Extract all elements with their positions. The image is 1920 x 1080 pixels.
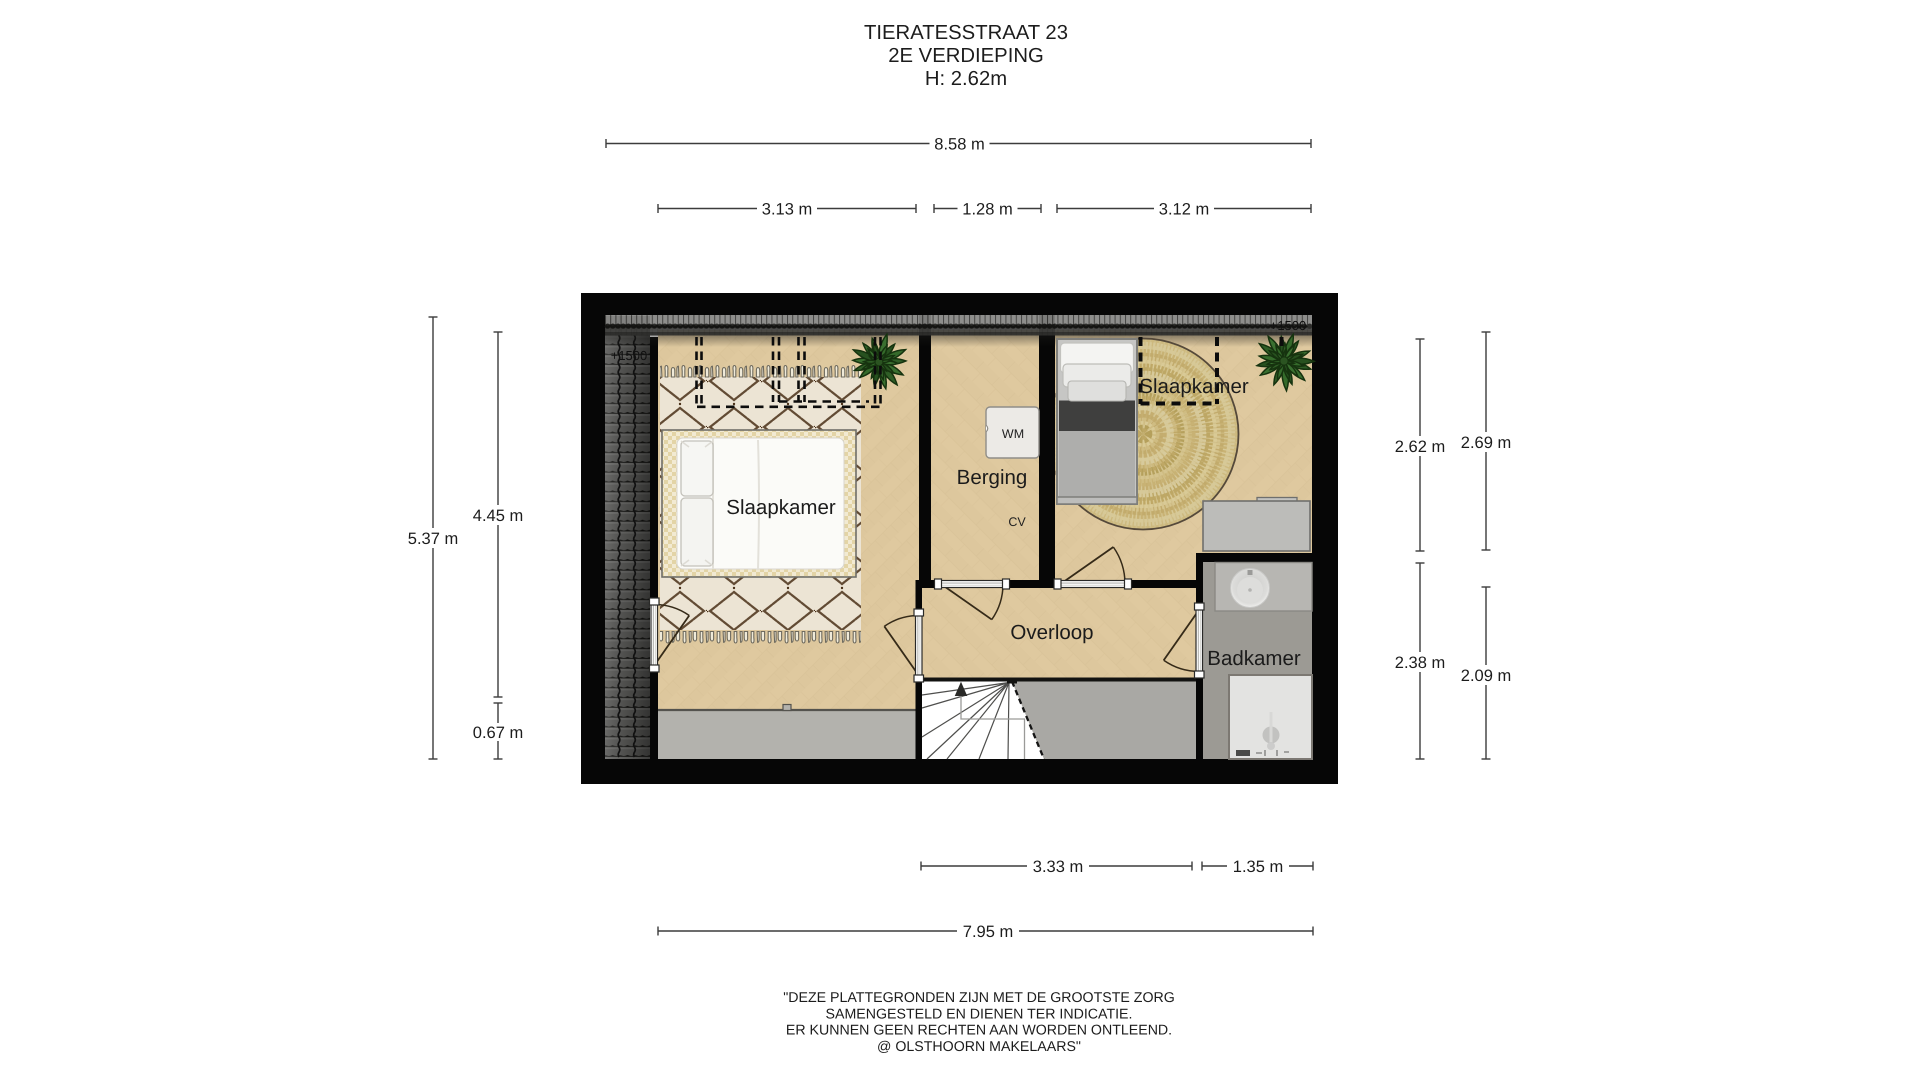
svg-text:Overloop: Overloop <box>1010 621 1093 644</box>
svg-text:2.69 m: 2.69 m <box>1461 434 1511 452</box>
svg-text:4.45 m: 4.45 m <box>473 507 523 525</box>
svg-text:@ OLSTHOORN MAKELAARS": @ OLSTHOORN MAKELAARS" <box>877 1039 1081 1055</box>
svg-text:7.95 m: 7.95 m <box>963 923 1013 941</box>
svg-text:Slaapkamer: Slaapkamer <box>1139 375 1249 398</box>
svg-text:2E VERDIEPING: 2E VERDIEPING <box>888 45 1044 67</box>
svg-text:CV: CV <box>1008 515 1026 529</box>
svg-text:1.35 m: 1.35 m <box>1233 858 1283 876</box>
svg-text:3.12 m: 3.12 m <box>1159 200 1209 218</box>
svg-text:2.38 m: 2.38 m <box>1395 654 1445 672</box>
svg-text:Badkamer: Badkamer <box>1207 647 1301 670</box>
svg-text:+1500: +1500 <box>1270 318 1307 333</box>
svg-text:3.33 m: 3.33 m <box>1033 858 1083 876</box>
svg-text:2.62 m: 2.62 m <box>1395 438 1445 456</box>
svg-text:0.67 m: 0.67 m <box>473 724 523 742</box>
svg-text:SAMENGESTELD EN DIENEN TER IND: SAMENGESTELD EN DIENEN TER INDICATIE. <box>826 1006 1133 1022</box>
svg-text:Berging: Berging <box>957 466 1028 489</box>
svg-text:TIERATESSTRAAT 23: TIERATESSTRAAT 23 <box>864 22 1068 44</box>
svg-text:H: 2.62m: H: 2.62m <box>925 68 1007 90</box>
svg-text:3.13 m: 3.13 m <box>762 200 812 218</box>
svg-text:ER KUNNEN GEEN RECHTEN AAN WOR: ER KUNNEN GEEN RECHTEN AAN WORDEN ONTLEE… <box>786 1023 1172 1039</box>
svg-text:WM: WM <box>1002 427 1024 441</box>
svg-text:5.37 m: 5.37 m <box>408 530 458 548</box>
svg-text:+1500: +1500 <box>611 348 648 363</box>
svg-text:2.09 m: 2.09 m <box>1461 667 1511 685</box>
svg-text:1.28 m: 1.28 m <box>962 200 1012 218</box>
svg-text:Slaapkamer: Slaapkamer <box>726 496 836 519</box>
svg-text:8.58 m: 8.58 m <box>934 135 984 153</box>
svg-text:"DEZE PLATTEGRONDEN ZIJN MET D: "DEZE PLATTEGRONDEN ZIJN MET DE GROOTSTE… <box>783 990 1175 1006</box>
